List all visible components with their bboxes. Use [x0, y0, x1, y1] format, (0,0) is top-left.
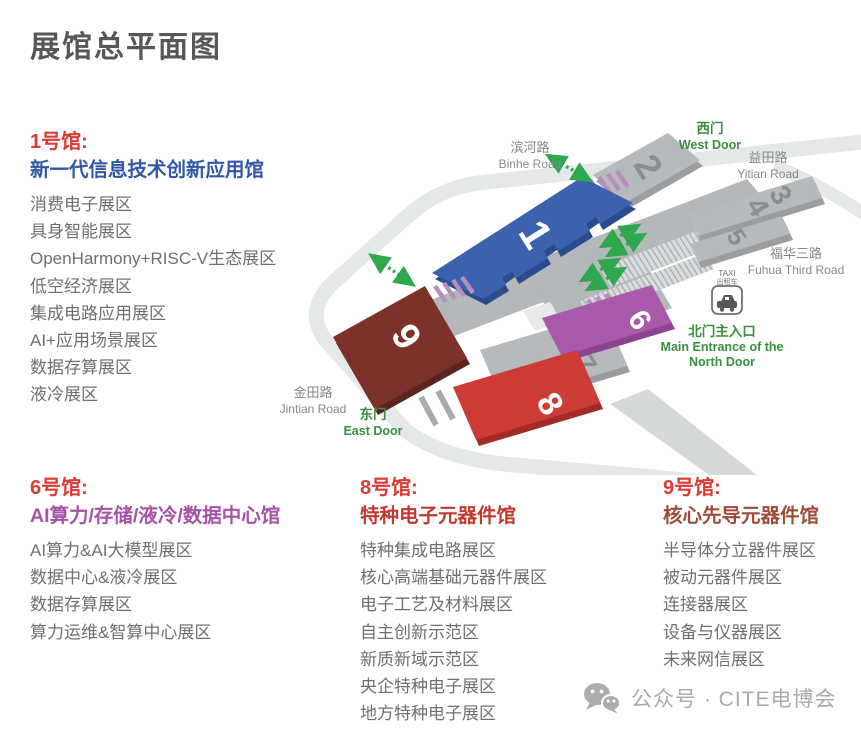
fuhua-road-label-en: Fuhua Third Road	[748, 263, 845, 277]
hall9-subtitle: 核心先导元器件馆	[663, 501, 819, 532]
south-walkway	[610, 389, 758, 475]
list-item: 电子工艺及材料展区	[360, 591, 547, 618]
hall8-subtitle: 特种电子元器件馆	[360, 501, 547, 532]
north-door-label-cn: 北门主入口	[688, 323, 756, 339]
hall1-info-block: 1号馆: 新一代信息技术创新应用馆 消费电子展区 具身智能展区 OpenHarm…	[30, 130, 276, 409]
jintian-road-label-en: Jintian Road	[280, 402, 346, 416]
hall8-info-block: 8号馆: 特种电子元器件馆 特种集成电路展区 核心高端基础元器件展区 电子工艺及…	[360, 476, 547, 727]
list-item: 具身智能展区	[30, 218, 276, 245]
jintian-road-label-cn: 金田路	[293, 385, 332, 400]
east-door-label-en: East Door	[343, 424, 402, 438]
hall9-name: 9号馆:	[663, 476, 819, 501]
list-item: 央企特种电子展区	[360, 673, 547, 700]
hall6-subtitle: AI算力/存储/液冷/数据中心馆	[30, 501, 280, 532]
floor-plan-map: 2 4 3 5 1	[280, 108, 861, 475]
binhe-road-label-cn: 滨河路	[510, 140, 549, 155]
list-item: 算力运维&智算中心展区	[30, 619, 280, 646]
hall8-zone-list: 特种集成电路展区 核心高端基础元器件展区 电子工艺及材料展区 自主创新示范区 新…	[360, 537, 547, 727]
hall8-name: 8号馆:	[360, 476, 547, 501]
list-item: 集成电路应用展区	[30, 300, 276, 327]
list-item: 新质新域示范区	[360, 646, 547, 673]
list-item: 设备与仪器展区	[663, 619, 819, 646]
page: 展馆总平面图 1号馆: 新一代信息技术创新应用馆 消费电子展区 具身智能展区 O…	[0, 0, 861, 735]
taxi-icon	[712, 286, 742, 314]
list-item: 低空经济展区	[30, 273, 276, 300]
list-item: OpenHarmony+RISC-V生态展区	[30, 245, 276, 272]
north-door-label-en1: Main Entrance of the	[661, 340, 784, 354]
hall9-road-stub	[438, 391, 453, 419]
list-item: 数据存算展区	[30, 354, 276, 381]
page-title: 展馆总平面图	[30, 22, 222, 66]
wechat-account-text: 公众号 · CITE电博会	[631, 683, 837, 713]
hall1-subtitle: 新一代信息技术创新应用馆	[30, 155, 276, 186]
west-door-label-cn: 西门	[697, 120, 724, 136]
list-item: 自主创新示范区	[360, 619, 547, 646]
hall1-zone-list: 消费电子展区 具身智能展区 OpenHarmony+RISC-V生态展区 低空经…	[30, 191, 276, 409]
taxi-label-cn: 出租车	[717, 277, 738, 286]
yitian-road-label-cn: 益田路	[748, 150, 787, 165]
list-item: 地方特种电子展区	[360, 700, 547, 727]
hall1-name: 1号馆:	[30, 130, 276, 155]
list-item: 特种集成电路展区	[360, 537, 547, 564]
hall6-name: 6号馆:	[30, 476, 280, 501]
taxi-label: TAXI	[718, 269, 735, 278]
list-item: 数据中心&液冷展区	[30, 564, 280, 591]
list-item: 未来网信展区	[663, 646, 819, 673]
wechat-icon	[583, 682, 621, 714]
list-item: 连接器展区	[663, 591, 819, 618]
hall9-zone-list: 半导体分立器件展区 被动元器件展区 连接器展区 设备与仪器展区 未来网信展区	[663, 537, 819, 673]
north-door-label-en2: North Door	[689, 355, 755, 369]
fuhua-road-label-cn: 福华三路	[770, 246, 822, 261]
list-item: 数据存算展区	[30, 591, 280, 618]
list-item: 消费电子展区	[30, 191, 276, 218]
hall6-zone-list: AI算力&AI大模型展区 数据中心&液冷展区 数据存算展区 算力运维&智算中心展…	[30, 537, 280, 646]
list-item: 被动元器件展区	[663, 564, 819, 591]
wechat-footer: 公众号 · CITE电博会	[583, 682, 837, 714]
hall9-road-stub	[421, 397, 436, 425]
list-item: 核心高端基础元器件展区	[360, 564, 547, 591]
hall9-info-block: 9号馆: 核心先导元器件馆 半导体分立器件展区 被动元器件展区 连接器展区 设备…	[663, 476, 819, 673]
hall6-info-block: 6号馆: AI算力/存储/液冷/数据中心馆 AI算力&AI大模型展区 数据中心&…	[30, 476, 280, 646]
list-item: 半导体分立器件展区	[663, 537, 819, 564]
list-item: AI算力&AI大模型展区	[30, 537, 280, 564]
list-item: AI+应用场景展区	[30, 327, 276, 354]
west-door-label-en: West Door	[679, 138, 741, 152]
yitian-road-label-en: Yitian Road	[737, 167, 799, 181]
binhe-road-label-en: Binhe Road	[499, 157, 562, 171]
list-item: 液冷展区	[30, 381, 276, 408]
east-door-label-cn: 东门	[360, 406, 387, 422]
